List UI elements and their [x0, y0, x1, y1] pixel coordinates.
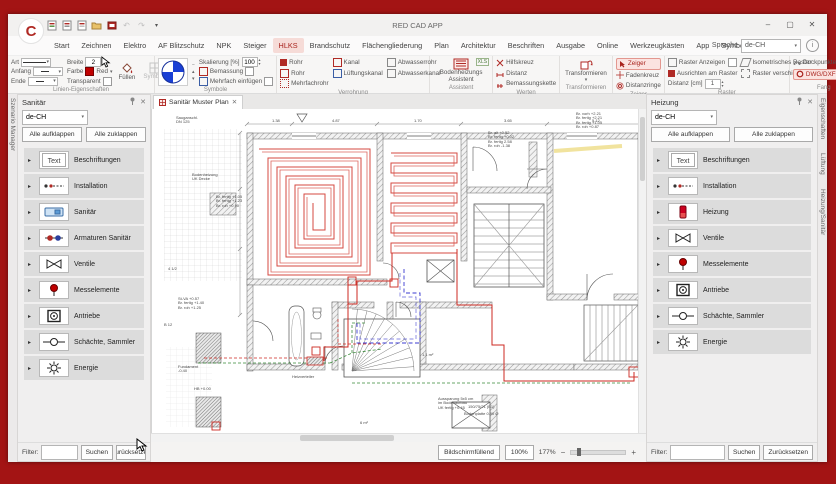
- multi-insert-checkbox[interactable]: [264, 77, 273, 86]
- language-value: de-CH: [26, 114, 46, 121]
- menu-tab-werkzeugk-sten[interactable]: Werkzeugkästen: [624, 38, 690, 53]
- dimension-label: Bemassung: [210, 68, 243, 75]
- panel-title: Sanitär: [22, 98, 46, 107]
- drawing-canvas-area: Sanitär Muster Plan ✕: [151, 94, 646, 462]
- pin-icon[interactable]: [129, 97, 136, 107]
- app-window: C ↶ ↷ ▾ RED CAD APP – ▢ ✕ StartZeichnenE…: [8, 14, 827, 462]
- plan-annotation: 6 m²: [360, 421, 368, 425]
- fitting-icon: [39, 229, 69, 247]
- vent-duct-button[interactable]: Lüftungskanal: [333, 69, 383, 79]
- drawing-tab[interactable]: Sanitär Muster Plan ✕: [153, 95, 243, 109]
- zoom-slider-thumb[interactable]: [577, 448, 581, 456]
- ribbon-group-symbols: − ▴ ▾ Skalierung [%] 100▴▾ Bemassung Meh…: [155, 56, 277, 93]
- panel-item-antriebe[interactable]: ▸Antriebe: [24, 304, 144, 328]
- chevron-down-icon: ▾: [53, 78, 56, 84]
- scale-value: 100: [242, 57, 258, 67]
- ende-label: Ende: [11, 78, 26, 85]
- paint-bucket-icon: [120, 62, 134, 75]
- chevron-down-icon: ▾: [585, 78, 588, 84]
- panel-item-label: Ventile: [74, 261, 95, 268]
- heizung-panel: Heizung ✕ de-CH ▾ Alle aufklappen Alle z…: [646, 94, 818, 462]
- chevron-down-icon: ▾: [81, 114, 84, 120]
- pipe-icon: [280, 59, 287, 66]
- farbe-label: Farbe: [67, 68, 83, 75]
- menu-tab-plan[interactable]: Plan: [428, 38, 455, 53]
- expander-icon[interactable]: ▸: [657, 313, 663, 320]
- grid-icon: [668, 58, 677, 67]
- save-icon[interactable]: [61, 20, 72, 31]
- distance-icon: [496, 69, 504, 77]
- qat-dropdown-icon[interactable]: ▾: [151, 20, 162, 31]
- panel-item-label: Ventile: [703, 235, 724, 242]
- horizontal-scroll-thumb[interactable]: [300, 435, 394, 441]
- filter-label: Filter:: [651, 449, 667, 456]
- zoom-out-icon[interactable]: −: [561, 448, 566, 457]
- dimension-chain-icon: [496, 80, 504, 88]
- close-icon[interactable]: ✕: [807, 98, 813, 106]
- menu-tab-brandschutz[interactable]: Brandschutz: [304, 38, 357, 53]
- install-icon: [39, 177, 69, 195]
- plan-tab-icon: [159, 99, 166, 106]
- panel-item-schächte-sammler[interactable]: ▸Schächte, Sammler: [653, 304, 811, 328]
- search-button[interactable]: Suchen: [81, 445, 113, 460]
- plan-annotation: Bodenheizung UK Decke: [192, 173, 218, 182]
- line-end-dropdown[interactable]: ▾: [28, 77, 58, 86]
- transparent-label: Transparent: [67, 78, 101, 85]
- symbol-language-dropdown[interactable]: de-CH ▾: [22, 110, 88, 125]
- menu-tab-ausgabe[interactable]: Ausgabe: [550, 38, 591, 53]
- menu-tab-npk[interactable]: NPK: [210, 38, 237, 53]
- chevron-down-icon: ▾: [58, 69, 61, 75]
- dock-points-button[interactable]: Dockpunkte: [793, 58, 836, 68]
- language-value: de-CH: [655, 114, 675, 121]
- menu-tab-elektro[interactable]: Elektro: [117, 38, 152, 53]
- panel-item-label: Messelemente: [74, 287, 120, 294]
- menu-tab-zeichnen[interactable]: Zeichnen: [75, 38, 117, 53]
- panel-item-label: Installation: [703, 183, 736, 190]
- panel-item-label: Schächte, Sammler: [703, 313, 764, 320]
- save-as-icon[interactable]: [76, 20, 87, 31]
- chevron-down-icon[interactable]: ▾: [110, 69, 113, 75]
- expand-all-button[interactable]: Alle aufklappen: [22, 127, 82, 142]
- zoom-in-icon[interactable]: +: [631, 448, 636, 457]
- zoom-slider[interactable]: [570, 450, 626, 455]
- left-side-tab-strip: Szenario Manager: [8, 94, 17, 462]
- grid-distance-value: 1: [705, 79, 721, 89]
- plan-annotation: Br. alt +0.52 Br. fertig +0.02 Br. ferti…: [488, 131, 514, 149]
- panel-item-ventile[interactable]: ▸Ventile: [653, 226, 811, 250]
- pipe-icon: [280, 69, 289, 78]
- duct-icon: [333, 58, 342, 67]
- waste-duct-icon: [387, 69, 396, 78]
- color-swatch: [85, 67, 94, 76]
- language-dropdown[interactable]: de-CH ▾: [741, 39, 801, 53]
- drive-icon: [39, 307, 69, 325]
- cross-icon: [496, 59, 504, 67]
- panel-item-label: Armaturen Sanitär: [74, 235, 131, 242]
- pin-icon[interactable]: [796, 97, 803, 107]
- panel-item-beschriftungen[interactable]: ▸TextBeschriftungen: [24, 148, 144, 172]
- snap-icon: [796, 70, 804, 78]
- line-style-dropdown[interactable]: ▾: [21, 58, 51, 67]
- right-side-tab-strip: Eigenschaften Lüftung Heizung/Sanitär: [818, 94, 827, 462]
- panel-item-label: Antriebe: [74, 313, 100, 320]
- distance-button[interactable]: Distanz: [496, 69, 556, 79]
- close-icon[interactable]: ✕: [140, 98, 146, 106]
- expander-icon[interactable]: ▸: [28, 261, 34, 268]
- fill-button[interactable]: Füllen: [117, 58, 138, 86]
- fill-label: Füllen: [119, 75, 136, 82]
- plan-annotation: 3.65: [504, 119, 512, 123]
- panel-item-messelemente[interactable]: ▸Messelemente: [24, 278, 144, 302]
- language-value: de-CH: [745, 42, 765, 49]
- close-button[interactable]: ✕: [801, 14, 823, 36]
- drawing-tab-label: Sanitär Muster Plan: [169, 99, 229, 106]
- line-start-dropdown[interactable]: ▾: [33, 67, 63, 76]
- tab-close-icon[interactable]: ✕: [232, 98, 237, 106]
- pipe-button[interactable]: Rohr: [280, 58, 328, 68]
- chevron-down-icon: ▾: [794, 43, 797, 49]
- text-icon: Text: [668, 151, 698, 169]
- expander-icon[interactable]: ▸: [28, 287, 34, 294]
- expander-icon[interactable]: ▸: [657, 235, 663, 242]
- scenario-manager-tab[interactable]: Szenario Manager: [9, 98, 16, 151]
- move-grid-icon: [741, 69, 750, 78]
- heating-sanitary-tab[interactable]: Heizung/Sanitär: [819, 189, 826, 235]
- group-label: Assistent: [433, 84, 489, 93]
- multi-insert-label: Mehrfach einfügen: [210, 78, 262, 85]
- help-cross-button[interactable]: Hilfskreuz: [496, 58, 556, 68]
- panel-item-label: Messelemente: [703, 261, 749, 268]
- plan-annotation: 4.87: [332, 119, 340, 123]
- symbol-minus-icon[interactable]: −: [192, 62, 195, 68]
- plan-annotation: 1.38: [272, 119, 280, 123]
- ribbon-group-measure: Hilfskreuz Distanz Bemassungskette Werte…: [493, 56, 560, 93]
- panel-item-energie[interactable]: ▸Energie: [24, 356, 144, 380]
- collapse-all-button[interactable]: Alle zuklappen: [734, 127, 813, 142]
- install-icon: [668, 177, 698, 195]
- chevron-down-icon: ▾: [710, 114, 713, 120]
- expander-icon[interactable]: ▸: [657, 209, 663, 216]
- symbol-category-list: ▸TextBeschriftungen▸Installation▸Heizung…: [647, 143, 817, 442]
- ribbon-group-grid: Raster Anzeigen Ausrichten am Raster Dis…: [665, 56, 790, 93]
- print-icon[interactable]: [106, 20, 117, 31]
- ribbon-group-pointer: Zeiger Fadenkreuz Distanzringe Zeiger: [613, 56, 665, 93]
- ribbon-group-snap: Dockpunkte DWG/DXF Fang Fang: [790, 56, 836, 93]
- dimension-checkbox[interactable]: [245, 67, 254, 76]
- symbol-preview[interactable]: [158, 58, 188, 86]
- dock-points-icon: [793, 59, 801, 67]
- panel-item-label: Antriebe: [703, 287, 729, 294]
- plan-annotation: HB +0.00: [194, 387, 211, 391]
- ribbon-group-piping: Rohr Rohr Mehrfachrohr Kanal Lüftungskan…: [277, 56, 430, 93]
- menu-tab-online[interactable]: Online: [591, 38, 624, 53]
- reset-button[interactable]: Zurücksetzen: [116, 445, 146, 460]
- multi-pipe-icon: [280, 79, 289, 88]
- radiator-icon: [668, 203, 698, 221]
- pointer-button[interactable]: Zeiger: [616, 58, 661, 70]
- panel-item-antriebe[interactable]: ▸Antriebe: [653, 278, 811, 302]
- panel-item-label: Beschriftungen: [74, 157, 121, 164]
- horizontal-scrollbar[interactable]: [151, 433, 646, 442]
- menu-tab-af-blitzschutz[interactable]: AF Blitzschutz: [152, 38, 210, 53]
- properties-tab[interactable]: Eigenschaften: [819, 98, 826, 139]
- expander-icon[interactable]: ▸: [657, 261, 663, 268]
- panel-item-label: Energie: [703, 339, 727, 346]
- undo-icon[interactable]: ↶: [121, 20, 132, 31]
- filter-input[interactable]: [670, 445, 725, 460]
- canvas-status-bar: Bildschirmfüllend 100% 177% − +: [151, 442, 646, 462]
- align-grid-icon: [668, 70, 675, 77]
- panel-item-schächte-sammler[interactable]: ▸Schächte, Sammler: [24, 330, 144, 354]
- app-logo[interactable]: C: [18, 18, 44, 44]
- search-button[interactable]: Suchen: [728, 445, 760, 460]
- expander-icon[interactable]: ▸: [28, 313, 34, 320]
- zoom-level: 177%: [539, 449, 556, 456]
- plan-annotation: Bodenplatte 0.90 Ø: [464, 412, 498, 416]
- text-icon: Text: [39, 151, 69, 169]
- menu-tab-hlks[interactable]: HLKS: [273, 38, 304, 53]
- crosshair-button[interactable]: Fadenkreuz: [616, 71, 661, 81]
- menu-tab-architektur[interactable]: Architektur: [455, 38, 502, 53]
- ribbon-group-assistant: Bodenheizungs Assistent XLS Assistent: [430, 56, 493, 93]
- dwg-dxf-snap-button[interactable]: DWG/DXF Fang: [793, 69, 836, 81]
- panel-item-label: Schächte, Sammler: [74, 339, 135, 346]
- art-label: Art: [11, 59, 19, 66]
- symbol-down-icon[interactable]: ▾: [192, 76, 195, 82]
- grid-distance-stepper[interactable]: 1▴▾: [705, 79, 724, 89]
- expander-icon[interactable]: ▸: [657, 183, 663, 190]
- symbol-language-dropdown[interactable]: de-CH ▾: [651, 110, 717, 125]
- plan-annotation: 150/75/21 (B1): [468, 405, 494, 409]
- breite-label: Breite: [67, 59, 83, 66]
- floor-plan-drawing[interactable]: Sauganschl. DN 1251.384.871.703.655.12Br…: [152, 109, 646, 433]
- multi-pipe-button[interactable]: Mehrfachrohr: [280, 79, 328, 89]
- expander-icon[interactable]: ▸: [28, 157, 34, 164]
- symbol-up-icon[interactable]: ▴: [192, 69, 195, 75]
- zoom-100-button[interactable]: 100%: [505, 445, 534, 460]
- svg-text:Text: Text: [48, 158, 61, 165]
- group-label: Transformieren: [563, 84, 609, 93]
- maximize-button[interactable]: ▢: [779, 14, 801, 36]
- crosshair-icon: [616, 71, 624, 79]
- group-label: Fang: [793, 84, 836, 93]
- distance-rings-button[interactable]: Distanzringe: [616, 81, 661, 91]
- anfang-label: Anfang: [11, 68, 31, 75]
- minimize-button[interactable]: –: [757, 14, 779, 36]
- dimension-chain-button[interactable]: Bemassungskette: [496, 79, 556, 89]
- expander-icon[interactable]: ▸: [657, 157, 663, 164]
- title-bar: C ↶ ↷ ▾ RED CAD APP – ▢ ✕: [8, 14, 827, 36]
- language-label: Sprache: [712, 42, 738, 49]
- panel-item-beschriftungen[interactable]: ▸TextBeschriftungen: [653, 148, 811, 172]
- window-controls: – ▢ ✕: [757, 14, 823, 36]
- filter-input[interactable]: [41, 445, 77, 460]
- sensor-icon: [39, 281, 69, 299]
- multi-insert-icon: [199, 77, 208, 86]
- panel-item-label: Energie: [74, 365, 98, 372]
- panel-item-sanitär[interactable]: ▸Sanitär: [24, 200, 144, 224]
- reset-button[interactable]: Zurücksetzen: [763, 445, 813, 460]
- scale-label: Skalierung [%]: [199, 59, 240, 66]
- width-value: 2: [85, 57, 101, 67]
- expander-icon[interactable]: ▸: [657, 287, 663, 294]
- fit-screen-button[interactable]: Bildschirmfüllend: [438, 445, 500, 460]
- panel-title: Heizung: [651, 98, 679, 107]
- grid-align-button[interactable]: Ausrichten am Raster: [668, 69, 738, 79]
- scale-stepper[interactable]: 100▴▾: [242, 57, 261, 67]
- menu-bar: StartZeichnenElektroAF BlitzschutzNPKSte…: [8, 36, 827, 56]
- expander-icon[interactable]: ▸: [28, 339, 34, 346]
- assistant-label: Bodenheizungs Assistent: [435, 70, 487, 84]
- plan-annotation: Heizverteiler: [292, 375, 314, 379]
- expander-icon[interactable]: ▸: [28, 183, 34, 190]
- sanitaer-panel: Sanitär ✕ de-CH ▾ Alle aufklappen Alle z…: [17, 94, 151, 462]
- plan-annotation: Br. vorh +2.21 Br. fertig +2.21 Br. fert…: [576, 112, 602, 130]
- drive-icon: [668, 281, 698, 299]
- panel-item-label: Installation: [74, 183, 107, 190]
- panel-item-label: Heizung: [703, 209, 729, 216]
- menu-tab-fl-chengliederung[interactable]: Flächengliederung: [356, 38, 428, 53]
- rings-icon: [616, 82, 624, 90]
- plan-annotation: Sauganschl. DN 125: [176, 116, 198, 125]
- grid-show-button[interactable]: Raster Anzeigen: [668, 58, 738, 68]
- ribbon-group-line-properties: Art ▾ Anfang ▾ Ende ▾ Breite 2▴▾ Farbe R…: [8, 56, 155, 93]
- expand-all-button[interactable]: Alle aufklappen: [651, 127, 730, 142]
- panel-item-ventile[interactable]: ▸Ventile: [24, 252, 144, 276]
- quick-access-toolbar: ↶ ↷ ▾: [46, 20, 162, 31]
- panel-item-heizung[interactable]: ▸Heizung: [653, 200, 811, 224]
- grid-show-checkbox[interactable]: [728, 58, 737, 67]
- plan-annotation: 1.70: [414, 119, 422, 123]
- xls-badge: XLS: [476, 58, 489, 66]
- energy-icon: [39, 359, 69, 377]
- valve-icon: [39, 255, 69, 273]
- shaft-icon: [39, 333, 69, 351]
- ventilation-tab[interactable]: Lüftung: [819, 153, 826, 175]
- vertical-scrollbar[interactable]: [638, 109, 646, 433]
- valve-icon: [668, 229, 698, 247]
- language-select: Sprache de-CH ▾: [712, 39, 801, 53]
- grid-distance: Distanz [cm] 1▴▾: [668, 79, 738, 89]
- menu-tab-start[interactable]: Start: [48, 38, 75, 53]
- iso-grid-icon: [740, 58, 752, 67]
- pipe2-button[interactable]: Rohr: [280, 69, 328, 79]
- open-folder-icon[interactable]: [91, 20, 102, 31]
- menu-tab-beschriften[interactable]: Beschriften: [502, 38, 551, 53]
- ribbon-group-transform: Transformieren ▾ Transformieren: [560, 56, 613, 93]
- plan-annotation: 1.1 m²: [422, 353, 433, 357]
- ribbon: Art ▾ Anfang ▾ Ende ▾ Breite 2▴▾ Farbe R…: [8, 56, 827, 94]
- sensor-icon: [668, 255, 698, 273]
- panel-item-energie[interactable]: ▸Energie: [653, 330, 811, 354]
- expander-icon[interactable]: ▸: [657, 339, 663, 346]
- expander-icon[interactable]: ▸: [28, 365, 34, 372]
- color-value[interactable]: Red: [96, 68, 108, 75]
- plan-annotation: Fundament -0.40: [178, 365, 198, 374]
- svg-text:Text: Text: [677, 158, 690, 165]
- panel-item-label: Sanitär: [74, 209, 96, 216]
- info-icon[interactable]: i: [806, 39, 819, 52]
- expander-icon[interactable]: ▸: [28, 209, 34, 216]
- shaft-icon: [668, 307, 698, 325]
- redo-icon[interactable]: ↷: [136, 20, 147, 31]
- transform-button[interactable]: Transformieren ▾: [563, 58, 609, 84]
- energy-icon: [668, 333, 698, 351]
- symbol-category-list: ▸TextBeschriftungen▸Installation▸Sanitär…: [18, 143, 150, 442]
- panel-item-installation[interactable]: ▸Installation: [653, 174, 811, 198]
- panel-item-messelemente[interactable]: ▸Messelemente: [653, 252, 811, 276]
- plan-annotation: 4 1/2: [168, 267, 177, 271]
- filter-label: Filter:: [22, 449, 38, 456]
- menu-tab-steiger[interactable]: Steiger: [237, 38, 272, 53]
- dimension-icon: [199, 67, 208, 76]
- waste-pipe-icon: [387, 58, 396, 67]
- sink-icon: [39, 203, 69, 221]
- panel-item-label: Beschriftungen: [703, 157, 750, 164]
- panel-item-armaturen-sanitär[interactable]: ▸Armaturen Sanitär: [24, 226, 144, 250]
- vertical-scroll-thumb[interactable]: [640, 117, 645, 181]
- plan-annotation: B 12: [164, 323, 172, 327]
- transparent-checkbox[interactable]: [103, 77, 112, 86]
- plan-annotation: St-VA +0.57 Br. fertig +1.40 Br. roh +1.…: [178, 297, 204, 310]
- panel-item-installation[interactable]: ▸Installation: [24, 174, 144, 198]
- collapse-all-button[interactable]: Alle zuklappen: [86, 127, 146, 142]
- width-stepper[interactable]: 2▴▾: [85, 57, 104, 67]
- plan-annotation: Br. fertig +1.05 Br. fertig +1.23 Br. ro…: [216, 195, 242, 208]
- vent-duct-icon: [333, 69, 342, 78]
- duct-button[interactable]: Kanal: [333, 58, 383, 68]
- new-file-icon[interactable]: [46, 20, 57, 31]
- chevron-down-icon: ▾: [47, 59, 50, 65]
- expander-icon[interactable]: ▸: [28, 235, 34, 242]
- pointer-icon: [619, 60, 626, 68]
